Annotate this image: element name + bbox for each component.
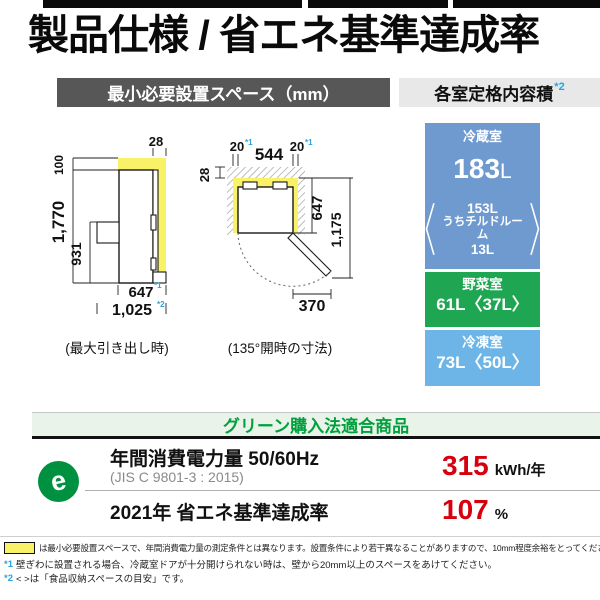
top-view-diagram: 20 *1 544 20 *1 28 647 1,175 370 (135°開時…: [195, 118, 410, 363]
dim-1025-note: *2: [157, 300, 165, 309]
capacity-number: 183: [453, 153, 500, 184]
fridge-body-side: [119, 170, 153, 283]
door-handle-upper: [151, 215, 156, 230]
sub-capacity-line: 153L: [437, 201, 528, 216]
side-view-diagram: 28 100 1,770 931 647 *1 1,025 *2 (最大引き出し…: [40, 118, 220, 363]
annual-power-number: 315: [442, 450, 489, 482]
dim-647-top: 647: [309, 195, 326, 220]
row-divider: [85, 490, 600, 491]
dim-1025: 1,025: [112, 302, 152, 319]
fridge-body-top: [238, 187, 293, 233]
footnote-2-mark: *1: [4, 559, 13, 570]
dim-28-top: 28: [149, 134, 163, 149]
pulled-out-drawer: [97, 222, 119, 243]
room-name: 冷蔵室: [425, 123, 540, 144]
capacity-block-freezer: 冷凍室 73L〈50L〉: [425, 330, 540, 386]
sub-capacity-line: うちチルドルーム: [437, 216, 528, 242]
sub-capacity-line: 13L: [437, 242, 528, 257]
dim-20-left: 20: [230, 139, 244, 154]
section-header-install-space: 最小必要設置スペース（mm）: [57, 78, 390, 107]
achievement-rate-unit: %: [495, 506, 508, 523]
footnote-2-text: 壁ぎわに設置される場合、冷蔵室ドアが十分開けられない時は、壁から20mm以上のス…: [16, 557, 497, 571]
capacity-block-vegetable: 野菜室 61L〈37L〉: [425, 272, 540, 327]
angle-bracket-right-icon: [530, 202, 540, 256]
angle-bracket-left-icon: [425, 202, 435, 256]
annual-power-value: 315 kWh/年: [442, 450, 546, 482]
yellow-legend-swatch: [4, 542, 35, 554]
footnote-3: *2 < >は「食品収納スペースの目安」です。: [4, 571, 189, 585]
room-capacity: 183L: [425, 155, 540, 188]
dim-100: 100: [52, 155, 66, 175]
top-bar-segment: [43, 0, 302, 8]
capacity-chart: 冷蔵室 183L 153L うちチルドルーム 13L 野菜室 61L〈37L〉 …: [425, 123, 540, 389]
dim-931: 931: [68, 242, 84, 266]
page-title: 製品仕様 / 省エネ基準達成率: [28, 12, 539, 58]
achievement-rate-number: 107: [442, 494, 489, 526]
product-spec-panel: 製品仕様 / 省エネ基準達成率 最小必要設置スペース（mm） 各室定格内容積*2: [0, 0, 600, 600]
dim-1175: 1,175: [328, 212, 344, 247]
dim-544: 544: [255, 145, 284, 164]
eco-mark-letter: e: [48, 467, 68, 497]
footnote-2: *1 壁ぎわに設置される場合、冷蔵室ドアが十分開けられない時は、壁から20mm以…: [4, 557, 497, 571]
open-door: [288, 233, 331, 276]
chilled-room-detail: 153L うちチルドルーム 13L: [425, 201, 540, 257]
hinge-left: [243, 182, 257, 189]
capacity-header-note: *2: [554, 81, 564, 93]
green-law-header: グリーン購入法適合商品: [32, 412, 600, 439]
room-capacity: 73L〈50L〉: [425, 354, 540, 372]
jis-standard-label: (JIS C 9801-3 : 2015): [110, 469, 244, 485]
dim-647: 647: [128, 284, 153, 301]
top-bar-segment: [453, 0, 600, 8]
room-name: 冷凍室: [425, 330, 540, 350]
annual-power-unit: kWh/年: [495, 459, 546, 480]
capacity-header-label: 各室定格内容積: [434, 80, 553, 105]
dim-28-back: 28: [197, 168, 212, 182]
section-header-capacity: 各室定格内容積*2: [399, 78, 600, 107]
dim-20-right: 20: [290, 139, 304, 154]
footnote-3-text: < >は「食品収納スペースの目安」です。: [16, 571, 189, 585]
achievement-rate-label: 2021年 省エネ基準達成率: [110, 498, 329, 525]
install-space-header-label: 最小必要設置スペース（mm）: [107, 80, 339, 105]
dim-20-left-note: *1: [245, 138, 253, 147]
dim-647-note: *1: [154, 281, 162, 290]
door-handle-lower: [151, 258, 156, 270]
top-view-caption: (135°開時の寸法): [228, 341, 332, 356]
room-name: 野菜室: [425, 272, 540, 292]
footnote-1: は最小必要設置スペースで、年間消費電力量の測定条件とは異なります。設置条件により…: [4, 542, 600, 554]
side-view-caption: (最大引き出し時): [65, 341, 169, 356]
dim-1770: 1,770: [49, 201, 68, 244]
green-law-header-label: グリーン購入法適合商品: [223, 412, 409, 437]
capacity-unit: L: [500, 160, 512, 183]
dim-20-right-note: *1: [305, 138, 313, 147]
footnote-1-text: は最小必要設置スペースで、年間消費電力量の測定条件とは異なります。設置条件により…: [39, 542, 600, 554]
annual-power-label: 年間消費電力量 50/60Hz: [110, 444, 319, 471]
eco-mark-icon: e: [38, 461, 79, 502]
top-bar-segment: [308, 0, 448, 8]
section-separator: [0, 536, 600, 537]
capacity-block-fridge: 冷蔵室 183L 153L うちチルドルーム 13L: [425, 123, 540, 269]
footnote-3-mark: *2: [4, 573, 13, 584]
room-capacity: 61L〈37L〉: [425, 296, 540, 314]
dim-370: 370: [299, 298, 326, 315]
achievement-rate-value: 107 %: [442, 494, 508, 526]
hinge-right: [273, 182, 287, 189]
